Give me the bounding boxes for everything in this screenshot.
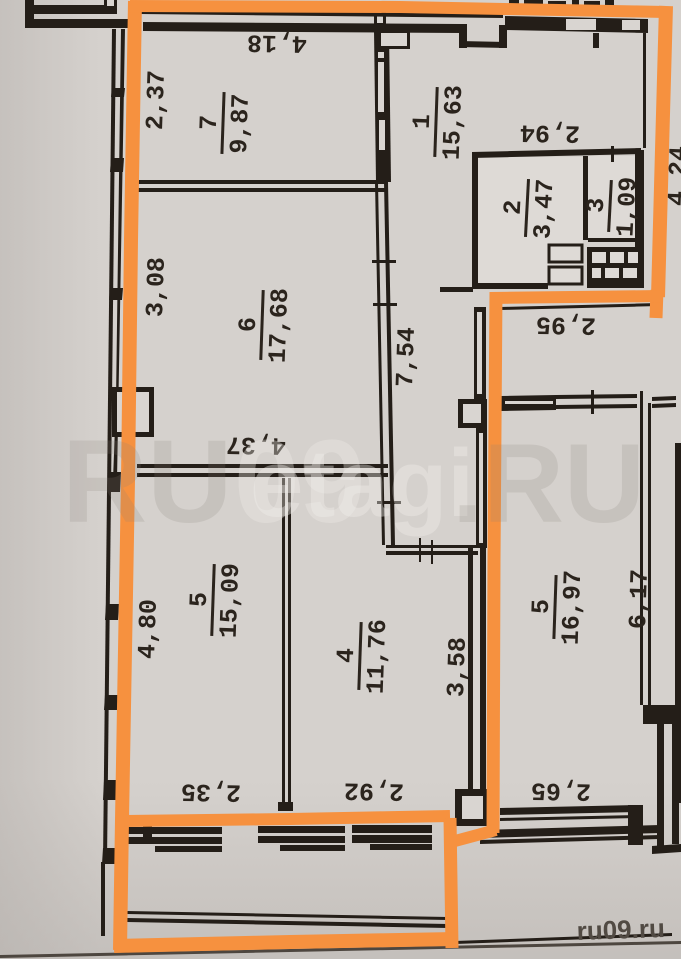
svg-text:3: 3 (582, 197, 612, 214)
svg-text:3,58: 3,58 (442, 637, 473, 698)
svg-text:7: 7 (195, 115, 225, 131)
svg-text:2: 2 (499, 199, 529, 216)
svg-text:15,63: 15,63 (438, 85, 470, 161)
svg-text:2,95: 2,95 (536, 309, 597, 339)
svg-text:etagi: etagi (250, 430, 474, 537)
svg-text:.RU: .RU (452, 421, 645, 546)
svg-text:1,09: 1,09 (611, 176, 643, 237)
svg-text:9,87: 9,87 (225, 93, 256, 154)
svg-text:11,76: 11,76 (362, 619, 394, 695)
svg-text:15,09: 15,09 (215, 563, 247, 639)
svg-text:6: 6 (234, 317, 264, 333)
svg-text:2,94: 2,94 (520, 117, 581, 147)
svg-text:4,80: 4,80 (133, 599, 164, 660)
svg-text:2,35: 2,35 (181, 776, 242, 806)
svg-text:3,47: 3,47 (528, 178, 560, 239)
svg-text:16,97: 16,97 (557, 570, 589, 646)
svg-text:4,18: 4,18 (247, 27, 308, 57)
svg-text:17,68: 17,68 (264, 288, 296, 364)
svg-text:ru09.ru: ru09.ru (576, 913, 665, 946)
svg-text:2,65: 2,65 (531, 775, 592, 805)
svg-text:4,24: 4,24 (663, 146, 681, 207)
svg-text:2,92: 2,92 (344, 775, 405, 805)
svg-text:RU: RU (62, 416, 232, 548)
svg-text:2,37: 2,37 (141, 70, 172, 131)
svg-text:5: 5 (527, 599, 557, 615)
svg-text:7,54: 7,54 (391, 327, 422, 388)
svg-text:4: 4 (332, 648, 362, 664)
svg-text:5: 5 (185, 592, 215, 608)
svg-text:1: 1 (408, 114, 438, 130)
svg-text:6,17: 6,17 (624, 569, 655, 630)
svg-text:3,08: 3,08 (141, 257, 172, 318)
